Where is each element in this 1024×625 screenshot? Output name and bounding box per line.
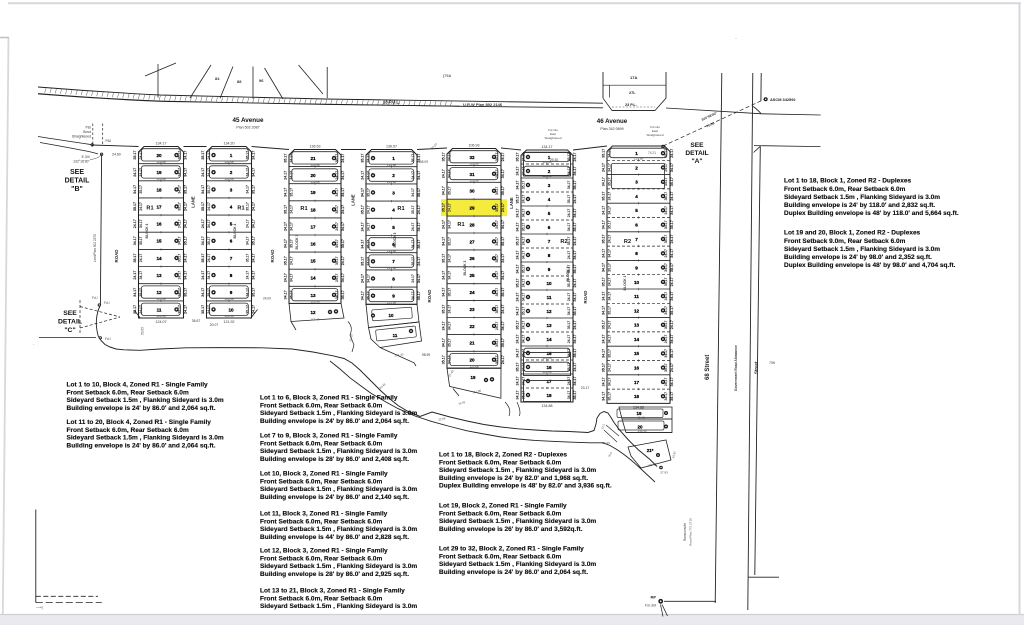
svg-text:34.17: 34.17 <box>501 169 505 178</box>
svg-text:53.05: 53.05 <box>141 327 145 335</box>
svg-text:35.17: 35.17 <box>284 256 288 265</box>
svg-text:24.17: 24.17 <box>670 235 674 244</box>
svg-text:35.17: 35.17 <box>361 205 365 214</box>
svg-text:35.17: 35.17 <box>366 188 370 197</box>
svg-text:34.17: 34.17 <box>501 321 505 330</box>
svg-text:24.17: 24.17 <box>602 377 606 386</box>
svg-text:24.17: 24.17 <box>246 168 250 177</box>
svg-text:35.17: 35.17 <box>284 205 288 214</box>
svg-text:24.17: 24.17 <box>442 271 446 280</box>
svg-text:24.17: 24.17 <box>664 378 668 387</box>
svg-text:Front Setback 6.0m, Rear Setba: Front Setback 6.0m, Rear Setback 6.0m <box>260 518 382 525</box>
svg-text:3: 3 <box>635 180 638 185</box>
svg-text:17A: 17A <box>630 75 637 80</box>
svg-text:Building envelope is 28' by 86: Building envelope is 28' by 86.0' and 2,… <box>260 571 409 578</box>
svg-text:11: 11 <box>547 295 552 300</box>
svg-text:24.17: 24.17 <box>670 149 674 158</box>
svg-text:Lot 19, Block 2, Zoned R1 - Si: Lot 19, Block 2, Zoned R1 - Single Famil… <box>439 503 567 510</box>
svg-text:24.17: 24.17 <box>133 219 137 228</box>
svg-text:Building envelope is 24' by 86: Building envelope is 24' by 86.0' and 2,… <box>260 418 409 425</box>
svg-text:24.17: 24.17 <box>184 305 188 314</box>
svg-text:35.17: 35.17 <box>139 288 143 297</box>
svg-text:16: 16 <box>546 365 552 370</box>
svg-text:R1: R1 <box>300 206 307 212</box>
svg-text:21: 21 <box>469 341 475 346</box>
svg-text:35.17: 35.17 <box>139 185 143 194</box>
svg-text:SEE: SEE <box>690 142 704 149</box>
svg-text:35.17: 35.17 <box>495 355 499 364</box>
svg-text:35.17: 35.17 <box>607 177 611 186</box>
svg-text:35.17: 35.17 <box>335 154 339 163</box>
svg-text:34.17: 34.17 <box>133 288 137 297</box>
svg-text:34.17: 34.17 <box>284 188 288 197</box>
svg-text:34.17: 34.17 <box>184 219 188 228</box>
svg-text:Sideyard Setback 1.5m , Flanki: Sideyard Setback 1.5m , Flanking Sideyar… <box>67 435 224 442</box>
svg-text:24.17: 24.17 <box>184 202 188 211</box>
svg-text:35.17: 35.17 <box>607 392 611 401</box>
svg-text:1: 1 <box>635 151 638 156</box>
svg-text:P&I: P&I <box>86 126 92 130</box>
svg-text:24.17: 24.17 <box>341 256 345 265</box>
svg-text:13: 13 <box>310 293 316 298</box>
svg-text:35.17: 35.17 <box>567 237 571 246</box>
svg-text:35.17: 35.17 <box>133 202 137 211</box>
svg-text:24.17: 24.17 <box>567 335 571 344</box>
svg-text:27: 27 <box>469 239 475 244</box>
svg-text:R2: R2 <box>560 239 567 245</box>
svg-text:2: 2 <box>635 165 638 170</box>
svg-text:24.17: 24.17 <box>516 167 520 176</box>
svg-text:Building envelope is 24' by 86: Building envelope is 24' by 86.0' and 2,… <box>260 494 409 501</box>
svg-text:24.17: 24.17 <box>602 163 606 172</box>
svg-text:35.17: 35.17 <box>201 202 205 211</box>
svg-text:—≈|: —≈| <box>36 606 43 610</box>
svg-text:Fd.I: Fd.I <box>105 337 111 341</box>
svg-text:12: 12 <box>546 309 552 314</box>
svg-text:34.17: 34.17 <box>178 236 182 245</box>
svg-text:Fd.I.&M: Fd.I.&M <box>645 604 657 608</box>
svg-text:34.17: 34.17 <box>289 222 293 231</box>
svg-text:34.17: 34.17 <box>201 236 205 245</box>
svg-text:Front Setback 6.0m, Rear Setba: Front Setback 6.0m, Rear Setback 6.0m <box>439 553 561 560</box>
svg-text:9: 9 <box>392 294 395 299</box>
svg-text:Building envelope is 24' by 82: Building envelope is 24' by 82.0' and 1,… <box>439 475 588 482</box>
svg-text:8: 8 <box>548 253 551 258</box>
svg-text:35.17: 35.17 <box>495 203 499 212</box>
svg-text:23 P.L.: 23 P.L. <box>625 103 637 107</box>
svg-text:96: 96 <box>259 78 264 83</box>
svg-text:24.17: 24.17 <box>335 273 339 282</box>
svg-text:34.17: 34.17 <box>341 171 345 180</box>
svg-text:24.17: 24.17 <box>664 335 668 344</box>
svg-text:35.17: 35.17 <box>516 153 520 162</box>
svg-text:25: 25 <box>469 273 475 278</box>
svg-text:24.17: 24.17 <box>133 168 137 177</box>
svg-text:34.17: 34.17 <box>139 168 143 177</box>
svg-text:13: 13 <box>156 273 162 278</box>
svg-text:17: 17 <box>310 224 316 229</box>
svg-text:16: 16 <box>310 242 316 247</box>
svg-text:35.17: 35.17 <box>284 154 288 163</box>
svg-text:35.17: 35.17 <box>602 235 606 244</box>
svg-text:84: 84 <box>215 76 220 81</box>
svg-text:35.17: 35.17 <box>201 254 205 263</box>
svg-text:24.17: 24.17 <box>289 205 293 214</box>
svg-text:24.17: 24.17 <box>516 209 520 218</box>
svg-text:35.17: 35.17 <box>289 239 293 248</box>
svg-text:35.17: 35.17 <box>573 181 577 190</box>
svg-text:24.17: 24.17 <box>664 206 668 215</box>
svg-text:Ramsomville: Ramsomville <box>683 523 687 541</box>
svg-text:20: 20 <box>310 173 316 178</box>
svg-text:24.17: 24.17 <box>184 254 188 263</box>
svg-text:Lot 1 to 10, Block 4, Zoned R1: Lot 1 to 10, Block 4, Zoned R1 - Single … <box>67 382 209 389</box>
svg-text:35.17: 35.17 <box>664 320 668 329</box>
svg-text:4: 4 <box>392 208 395 213</box>
svg-text:24.17: 24.17 <box>178 168 182 177</box>
svg-text:34.17: 34.17 <box>495 288 499 297</box>
svg-text:35.17: 35.17 <box>447 237 451 246</box>
svg-text:35.17: 35.17 <box>501 237 505 246</box>
svg-text:35.17: 35.17 <box>442 254 446 263</box>
svg-text:Front Setback 6.0m, Rear Setba: Front Setback 6.0m, Rear Setback 6.0m <box>439 459 561 466</box>
svg-text:24.17: 24.17 <box>607 278 611 287</box>
svg-text:34.17: 34.17 <box>602 220 606 229</box>
svg-text:35.17: 35.17 <box>670 306 674 315</box>
svg-text:24.17: 24.17 <box>495 322 499 331</box>
svg-text:24.17: 24.17 <box>670 363 674 372</box>
svg-text:35.17: 35.17 <box>252 288 256 297</box>
svg-text:23: 23 <box>469 307 475 312</box>
svg-text:35.17: 35.17 <box>207 236 211 245</box>
svg-text:34.17: 34.17 <box>607 335 611 344</box>
svg-text:12: 12 <box>311 310 316 315</box>
svg-text:34.17: 34.17 <box>664 392 668 401</box>
svg-text:24.17: 24.17 <box>607 235 611 244</box>
svg-text:18: 18 <box>546 393 552 398</box>
svg-text:35.17: 35.17 <box>178 151 182 160</box>
svg-text:24.17: 24.17 <box>516 251 520 260</box>
svg-text:35.17: 35.17 <box>602 320 606 329</box>
svg-text:35.17: 35.17 <box>501 186 505 195</box>
svg-text:BLOCK 2: BLOCK 2 <box>463 260 467 275</box>
svg-text:8: 8 <box>392 276 395 281</box>
svg-text:Duplex Building envelope is 48: Duplex Building envelope is 48' by 98.0'… <box>784 262 956 269</box>
svg-text:34.17: 34.17 <box>573 167 577 176</box>
svg-text:LANE: LANE <box>509 197 514 209</box>
svg-text:24.17: 24.17 <box>252 151 256 160</box>
svg-text:35.17: 35.17 <box>573 391 577 400</box>
svg-text:Front Setback 9.0m, Rear Setba: Front Setback 9.0m, Rear Setback 6.0m <box>784 238 906 245</box>
svg-text:Front Setback 6.0m, Rear Setba: Front Setback 6.0m, Rear Setback 6.0m <box>260 595 382 602</box>
svg-text:74.21: 74.21 <box>648 151 656 155</box>
svg-text:35.17: 35.17 <box>664 235 668 244</box>
svg-text:34.17: 34.17 <box>664 306 668 315</box>
svg-text:24.17: 24.17 <box>411 223 415 232</box>
svg-text:24.17: 24.17 <box>495 271 499 280</box>
svg-text:24.17: 24.17 <box>252 202 256 211</box>
svg-text:34.17: 34.17 <box>447 322 451 331</box>
svg-text:SEE: SEE <box>63 310 77 317</box>
svg-text:134.20: 134.20 <box>224 142 235 146</box>
svg-text:70ft: 70ft <box>769 361 775 365</box>
svg-text:34.17: 34.17 <box>573 293 577 302</box>
svg-text:1: 1 <box>392 156 395 161</box>
svg-text:29.30: 29.30 <box>550 158 559 162</box>
svg-text:35.17: 35.17 <box>289 188 293 197</box>
svg-text:24.17: 24.17 <box>207 254 211 263</box>
svg-text:24.17: 24.17 <box>335 171 339 180</box>
svg-text:24.17: 24.17 <box>521 237 525 246</box>
svg-text:24.17: 24.17 <box>361 222 365 231</box>
svg-text:24.17: 24.17 <box>602 335 606 344</box>
svg-text:34.17: 34.17 <box>442 186 446 195</box>
svg-text:134.17: 134.17 <box>542 145 553 149</box>
svg-text:R1: R1 <box>146 206 153 212</box>
svg-text:Limit/Plan 502 2270: Limit/Plan 502 2270 <box>93 234 97 262</box>
svg-text:30: 30 <box>469 189 475 194</box>
svg-text:24.17: 24.17 <box>495 169 499 178</box>
svg-text:24.17: 24.17 <box>573 363 577 372</box>
svg-text:24.17: 24.17 <box>178 271 182 280</box>
svg-text:Sideyard Setback 1.5m , Flanki: Sideyard Setback 1.5m , Flanking Sideyar… <box>439 467 596 474</box>
svg-text:15: 15 <box>310 259 316 264</box>
svg-text:35.17: 35.17 <box>664 363 668 372</box>
svg-text:34.17: 34.17 <box>521 293 525 302</box>
svg-text:35.17: 35.17 <box>495 153 499 162</box>
svg-text:34.17: 34.17 <box>139 219 143 228</box>
svg-text:35.17: 35.17 <box>573 265 577 274</box>
svg-text:34.17: 34.17 <box>573 335 577 344</box>
svg-text:9: 9 <box>635 265 638 270</box>
svg-text:3: 3 <box>392 190 395 195</box>
svg-text:Plan 342 0699: Plan 342 0699 <box>600 127 623 131</box>
svg-text:29: 29 <box>469 206 475 211</box>
svg-text:35.17: 35.17 <box>417 291 421 300</box>
svg-text:35.17: 35.17 <box>521 307 525 316</box>
svg-text:35.17: 35.17 <box>447 288 451 297</box>
svg-text:106.93: 106.93 <box>469 144 480 148</box>
svg-text:35.17: 35.17 <box>442 355 446 364</box>
svg-text:24.17: 24.17 <box>411 274 415 283</box>
svg-text:Building envelope is 44' by 86: Building envelope is 44' by 86.0' and 2,… <box>260 534 409 541</box>
svg-text:R1: R1 <box>457 222 464 228</box>
svg-text:34.17: 34.17 <box>501 271 505 280</box>
svg-text:E.3/4: E.3/4 <box>82 155 90 159</box>
svg-text:34.17: 34.17 <box>201 185 205 194</box>
svg-text:34.17: 34.17 <box>252 271 256 280</box>
svg-text:35.17: 35.17 <box>178 202 182 211</box>
svg-text:35.17: 35.17 <box>447 186 451 195</box>
svg-text:34.17: 34.17 <box>516 391 520 400</box>
svg-text:Sideyard Setback 1.5m , Flanki: Sideyard Setback 1.5m , Flanking Sideyar… <box>439 518 596 525</box>
svg-text:34.17: 34.17 <box>516 349 520 358</box>
svg-text:24.17: 24.17 <box>501 254 505 263</box>
svg-text:BLOCK 4: BLOCK 4 <box>145 223 149 238</box>
svg-text:34.17: 34.17 <box>602 306 606 315</box>
svg-text:24.17: 24.17 <box>501 355 505 364</box>
svg-text:24.17: 24.17 <box>447 203 451 212</box>
svg-text:35.17: 35.17 <box>607 306 611 315</box>
svg-text:68 Street: 68 Street <box>705 355 711 380</box>
svg-text:35.17: 35.17 <box>411 257 415 266</box>
svg-text:R2: R2 <box>624 239 631 245</box>
svg-text:34.17: 34.17 <box>417 222 421 231</box>
svg-text:7: 7 <box>230 256 233 261</box>
svg-text:123.68: 123.68 <box>469 364 479 368</box>
svg-text:DETAIL: DETAIL <box>685 150 708 157</box>
svg-text:34.17: 34.17 <box>252 219 256 228</box>
svg-text:34.17: 34.17 <box>521 335 525 344</box>
svg-text:24.17: 24.17 <box>521 321 525 330</box>
svg-text:34.17: 34.17 <box>495 186 499 195</box>
svg-text:35.17: 35.17 <box>521 265 525 274</box>
svg-text:Lot 13 to 21, Block 3, Zoned R: Lot 13 to 21, Block 3, Zoned R1 - Single… <box>260 588 405 595</box>
svg-text:Sideyard Setback 1.5m , Flanki: Sideyard Setback 1.5m , Flanking Sideyar… <box>784 246 940 253</box>
svg-text:34.17: 34.17 <box>521 251 525 260</box>
svg-text:34.17: 34.17 <box>607 249 611 258</box>
svg-text:Lot 29 to 32, Block 2, Zoned R: Lot 29 to 32, Block 2, Zoned R1 - Single… <box>439 546 584 553</box>
svg-text:Building envelope is 28' by 86: Building envelope is 28' by 86.0' and 2,… <box>260 456 409 463</box>
svg-text:34.17: 34.17 <box>411 240 415 249</box>
svg-text:24.17: 24.17 <box>178 219 182 228</box>
svg-text:34.17: 34.17 <box>447 271 451 280</box>
svg-text:35.17: 35.17 <box>246 151 250 160</box>
svg-text:24.17: 24.17 <box>284 222 288 231</box>
svg-text:35.17: 35.17 <box>516 321 520 330</box>
svg-text:Lot 10, Block 3, Zoned R1 - Si: Lot 10, Block 3, Zoned R1 - Single Famil… <box>260 471 388 478</box>
svg-text:Sideyard Setback 1.5m , Flanki: Sideyard Setback 1.5m , Flanking Sideyar… <box>260 410 417 417</box>
svg-text:32: 32 <box>469 155 475 160</box>
svg-text:R1: R1 <box>237 206 244 212</box>
svg-text:24.17: 24.17 <box>207 202 211 211</box>
svg-text:35.17: 35.17 <box>670 220 674 229</box>
svg-text:34.17: 34.17 <box>341 273 345 282</box>
svg-text:13: 13 <box>546 323 552 328</box>
svg-text:35.17: 35.17 <box>411 205 415 214</box>
svg-text:34.17: 34.17 <box>670 249 674 258</box>
svg-text:24.17: 24.17 <box>341 205 345 214</box>
svg-text:24.17: 24.17 <box>139 254 143 263</box>
svg-text:9: 9 <box>548 267 551 272</box>
svg-text:24.17: 24.17 <box>284 273 288 282</box>
svg-text:34.17: 34.17 <box>670 335 674 344</box>
svg-text:34.17: 34.17 <box>335 239 339 248</box>
svg-text:34.17: 34.17 <box>664 220 668 229</box>
svg-text:34.17: 34.17 <box>501 220 505 229</box>
svg-text:4: 4 <box>548 197 551 202</box>
svg-text:24.17: 24.17 <box>516 335 520 344</box>
svg-text:12: 12 <box>634 308 640 313</box>
svg-text:35.17: 35.17 <box>495 305 499 314</box>
svg-text:34.17: 34.17 <box>207 168 211 177</box>
svg-text:8: 8 <box>230 273 233 278</box>
svg-text:34.17: 34.17 <box>602 263 606 272</box>
svg-text:Sideyard Setback 1.5m , Flanki: Sideyard Setback 1.5m , Flanking Sideyar… <box>260 563 417 570</box>
svg-text:34.17: 34.17 <box>207 219 211 228</box>
svg-text:136.53: 136.53 <box>310 145 321 149</box>
svg-text:SEE: SEE <box>70 169 84 176</box>
svg-text:Sideyard Setback 1.5m , Flanki: Sideyard Setback 1.5m , Flanking Sideyar… <box>260 448 417 455</box>
svg-text:132°16'30": 132°16'30" <box>73 160 90 164</box>
svg-text:35.17: 35.17 <box>516 195 520 204</box>
svg-text:35.17: 35.17 <box>442 305 446 314</box>
svg-text:24.17: 24.17 <box>442 321 446 330</box>
svg-text:24.17: 24.17 <box>573 195 577 204</box>
svg-text:34.17: 34.17 <box>133 185 137 194</box>
svg-text:24.17: 24.17 <box>284 171 288 180</box>
svg-text:24.17: 24.17 <box>252 254 256 263</box>
svg-text:2: 2 <box>392 173 395 178</box>
svg-text:34.17: 34.17 <box>252 168 256 177</box>
svg-text:24.17: 24.17 <box>246 271 250 280</box>
svg-text:Building envelope is 24' by 86: Building envelope is 24' by 86.0' and 2,… <box>439 569 588 576</box>
svg-text:Street: Street <box>754 361 759 374</box>
svg-text:6: 6 <box>230 239 233 244</box>
svg-text:18: 18 <box>634 394 640 399</box>
svg-text:15: 15 <box>634 351 640 356</box>
svg-text:35.17: 35.17 <box>361 154 365 163</box>
svg-text:24.17: 24.17 <box>184 151 188 160</box>
svg-text:55.09: 55.09 <box>420 160 428 164</box>
svg-text:35.17: 35.17 <box>184 236 188 245</box>
svg-text:16: 16 <box>634 366 640 371</box>
svg-text:35.17: 35.17 <box>607 220 611 229</box>
svg-text:35.17: 35.17 <box>602 149 606 158</box>
svg-text:28: 28 <box>469 222 475 227</box>
svg-text:24.00: 24.00 <box>263 297 271 301</box>
svg-text:34.17: 34.17 <box>567 181 571 190</box>
svg-text:Straightened: Straightened <box>646 133 663 137</box>
svg-text:24: 24 <box>469 290 475 295</box>
svg-text:35.17: 35.17 <box>252 236 256 245</box>
svg-text:35.17: 35.17 <box>567 195 571 204</box>
svg-text:24.17: 24.17 <box>573 321 577 330</box>
svg-text:24.17: 24.17 <box>607 192 611 201</box>
svg-text:24.17: 24.17 <box>521 279 525 288</box>
svg-text:"C": "C" <box>64 327 75 334</box>
svg-text:34.17: 34.17 <box>670 206 674 215</box>
svg-text:19: 19 <box>156 170 162 175</box>
svg-text:136.57: 136.57 <box>386 145 397 149</box>
svg-text:34.17: 34.17 <box>207 271 211 280</box>
svg-text:24.17: 24.17 <box>361 274 365 283</box>
svg-text:34.17: 34.17 <box>361 188 365 197</box>
svg-text:22: 22 <box>469 324 475 329</box>
svg-text:123.68: 123.68 <box>224 314 234 318</box>
svg-text:34.17: 34.17 <box>178 185 182 194</box>
svg-text:134.17: 134.17 <box>156 142 167 146</box>
svg-text:35.17: 35.17 <box>335 205 339 214</box>
svg-text:34.17: 34.17 <box>442 338 446 347</box>
svg-text:DETAIL: DETAIL <box>65 178 90 185</box>
svg-text:24.17: 24.17 <box>447 305 451 314</box>
svg-text:34.17: 34.17 <box>602 349 606 358</box>
svg-text:24.17: 24.17 <box>289 256 293 265</box>
svg-text:34.17: 34.17 <box>366 223 370 232</box>
svg-text:Sideyard Setback 1.5m , Flanki: Sideyard Setback 1.5m , Flanking Sideyar… <box>67 397 224 404</box>
svg-text:35.17: 35.17 <box>341 188 345 197</box>
svg-text:35.17: 35.17 <box>178 254 182 263</box>
svg-text:21: 21 <box>310 156 316 161</box>
svg-text:35.17: 35.17 <box>341 239 345 248</box>
svg-text:1: 1 <box>230 153 233 158</box>
svg-text:24.17: 24.17 <box>567 293 571 302</box>
svg-text:24.17: 24.17 <box>501 305 505 314</box>
svg-text:20.07: 20.07 <box>210 323 219 327</box>
svg-text:34.17: 34.17 <box>495 338 499 347</box>
svg-text:11: 11 <box>393 333 398 338</box>
